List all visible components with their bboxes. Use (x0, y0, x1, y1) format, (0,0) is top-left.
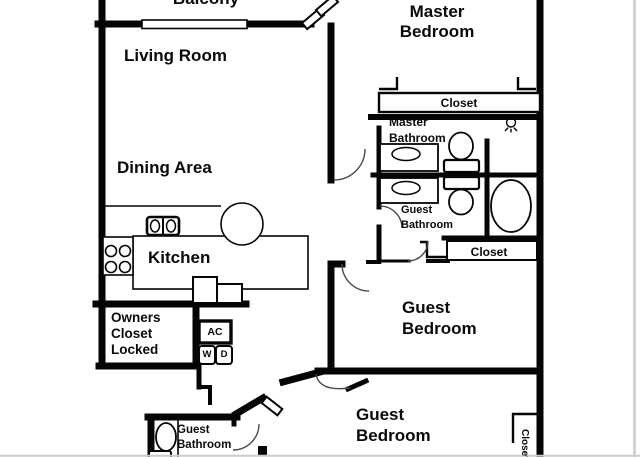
dryer-label: D (216, 346, 232, 364)
room-label-dining-area: Dining Area (117, 158, 212, 178)
door-jamb (258, 446, 267, 455)
room-label-guest-bathroom-bottom: Guest Bathroom (177, 423, 231, 453)
door-arc (408, 241, 428, 261)
room-label-guest-bedroom-bottom: Guest Bedroom (356, 404, 431, 446)
room-label-hall-closet: Closet (460, 245, 518, 260)
bathtub-icon (491, 180, 531, 232)
kitchen-sink-icon (147, 217, 179, 235)
room-label-guest-bathroom-mid: Guest Bathroom (401, 203, 453, 232)
room-label-master-closet: Closet (430, 96, 488, 111)
room-label-master-bathroom: Master Bathroom (389, 114, 446, 146)
window (142, 20, 247, 29)
room-label-guest-bedroom-mid: Guest Bedroom (402, 297, 477, 339)
room-label-balcony: Balcony (156, 0, 256, 9)
door-arc (334, 149, 365, 180)
door-arc (380, 206, 402, 228)
closet-bracket (518, 77, 536, 89)
door-arc (342, 264, 369, 291)
room-label-kitchen: Kitchen (148, 248, 210, 268)
bottom-toilet-icon (156, 423, 176, 451)
door-arc (233, 424, 259, 450)
room-label-owners-closet: Owners Closet Locked (111, 310, 161, 358)
washer-label: W (199, 346, 215, 364)
master-sink-icon (380, 144, 438, 171)
floor-plan: Balcony Living Room Master Bedroom Close… (0, 0, 640, 457)
master-toilet-icon (444, 133, 479, 173)
room-label-bedroom2-closet: Closet (519, 429, 530, 457)
wall-diagonal (348, 381, 366, 389)
wall-diagonal (283, 372, 320, 382)
ceiling-light-icon (505, 118, 517, 133)
closet-bracket (379, 77, 397, 89)
door-arc (316, 374, 350, 389)
wall-diagonal (236, 398, 263, 414)
round-counter-end-icon (221, 203, 263, 245)
door-leaf-icon (262, 397, 283, 416)
appliance-icon (193, 277, 217, 303)
floor-plan-drawing (0, 0, 640, 457)
ac-unit-label: AC (199, 321, 231, 343)
closet-jog (420, 242, 447, 257)
appliance-icon (217, 284, 242, 303)
room-label-master-bedroom: Master Bedroom (393, 2, 481, 42)
room-label-living-room: Living Room (124, 46, 227, 66)
stove-icon (103, 237, 133, 275)
guest-sink-icon (380, 178, 438, 203)
